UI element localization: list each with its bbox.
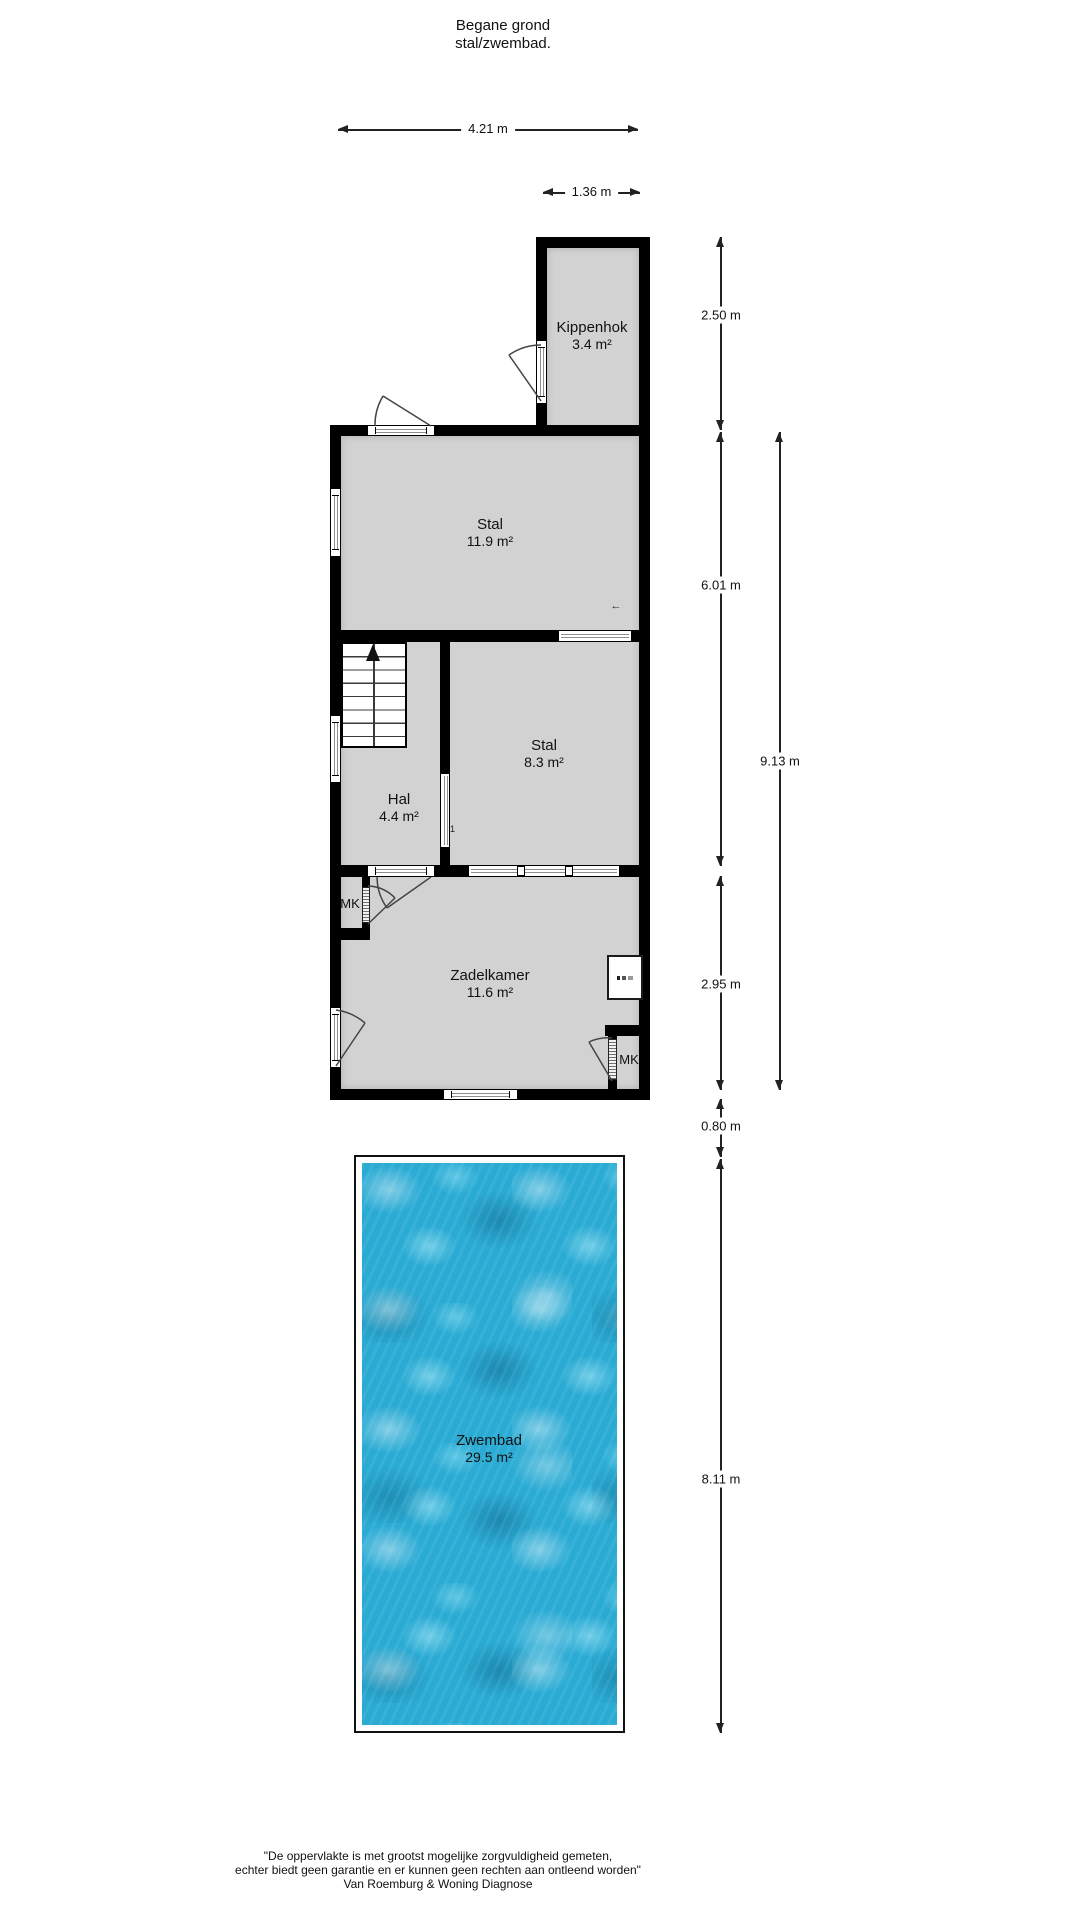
arrow-up-icon <box>716 237 724 247</box>
arrow-down-icon <box>775 1080 783 1090</box>
window-zadelkamer-south <box>443 1089 518 1100</box>
window-glass <box>561 632 629 640</box>
window-stal-small-south <box>468 865 620 877</box>
stairs-divider <box>373 644 375 746</box>
arrow-right-icon <box>630 188 640 196</box>
dim-label: 6.01 m <box>696 577 746 594</box>
arrow-down-icon <box>716 1147 724 1157</box>
door-stal-north-opening <box>367 425 435 436</box>
window-glass <box>332 495 339 550</box>
door-zadelkamer-west-opening <box>330 1007 341 1068</box>
window-glass <box>451 1091 510 1098</box>
staircase <box>341 642 407 748</box>
dim-label: 0.80 m <box>696 1118 746 1135</box>
room-area: 4.4 m² <box>329 808 469 824</box>
boiler-controls-icon <box>617 976 635 980</box>
disclaimer-line-1: "De oppervlakte is met grootst mogelijke… <box>88 1849 788 1863</box>
room-area: 29.5 m² <box>419 1449 559 1465</box>
boiler-unit <box>607 955 643 1000</box>
dim-kippenhok-width: 1.36 m <box>543 187 640 199</box>
door-threshold <box>332 1014 339 1061</box>
door-arc-stal-north <box>375 396 383 426</box>
door-threshold <box>375 867 427 875</box>
arrow-down-icon <box>716 856 724 866</box>
arrow-down-icon <box>716 420 724 430</box>
wall-mk-right-left-bottom <box>608 1080 617 1089</box>
arrow-left-icon <box>338 125 348 133</box>
arrow-left-icon <box>543 188 553 196</box>
floorplan-canvas: Begane grond stal/zwembad. 4.21 m 1.36 m… <box>0 0 1080 1920</box>
room-area: 11.9 m² <box>420 533 560 549</box>
dim-label: 4.21 m <box>461 121 515 136</box>
window-glass <box>471 867 617 875</box>
door-number-mark: 1 <box>450 824 455 834</box>
dim-stal-section-height: 6.01 m <box>715 432 727 866</box>
room-label-kippenhok: Kippenhok 3.4 m² <box>522 320 662 352</box>
dim-label: 1.36 m <box>565 184 619 199</box>
disclaimer: "De oppervlakte is met grootst mogelijke… <box>88 1849 788 1891</box>
level-direction-arrow-icon: ← <box>604 600 628 612</box>
arrow-down-icon <box>716 1723 724 1733</box>
room-label-stal-small: Stal 8.3 m² <box>474 738 614 770</box>
dim-building-width: 4.21 m <box>338 124 638 136</box>
disclaimer-line-3: Van Roemburg & Woning Diagnose <box>88 1877 788 1891</box>
dim-gap: 0.80 m <box>715 1099 727 1157</box>
dim-label: 9.13 m <box>755 753 805 770</box>
window-stal-west-1 <box>330 488 341 557</box>
arrow-right-icon <box>628 125 638 133</box>
door-hal-zadelkamer-opening <box>367 865 435 877</box>
window-hal-west <box>330 715 341 783</box>
room-name: Stal <box>474 738 614 754</box>
title-line-1: Begane grond <box>383 17 623 35</box>
title-line-2: stal/zwembad. <box>383 35 623 53</box>
arrow-up-icon <box>716 432 724 442</box>
room-label-mk-right: MK <box>614 1052 644 1067</box>
window-stal-divider <box>558 630 632 642</box>
dim-zadelkamer-height: 2.95 m <box>715 876 727 1090</box>
room-name: Zadelkamer <box>420 968 560 984</box>
dim-line <box>720 237 722 430</box>
window-mullion <box>565 866 573 876</box>
room-name: Kippenhok <box>522 320 662 336</box>
arrow-up-icon <box>716 1099 724 1109</box>
page-title: Begane grond stal/zwembad. <box>383 17 623 53</box>
room-label-mk-left: MK <box>335 896 365 911</box>
room-name: Zwembad <box>419 1433 559 1449</box>
arrow-up-icon <box>716 1159 724 1169</box>
arrow-up-icon <box>775 432 783 442</box>
disclaimer-line-2: echter biedt geen garantie en er kunnen … <box>88 1863 788 1877</box>
room-name: Hal <box>329 792 469 808</box>
room-area: 11.6 m² <box>420 984 560 1000</box>
room-label-zwembad: Zwembad 29.5 m² <box>419 1433 559 1465</box>
door-threshold <box>538 347 545 397</box>
arrow-down-icon <box>716 1080 724 1090</box>
dim-line <box>720 432 722 866</box>
wall-mk-left-right-bottom <box>362 923 370 940</box>
door-threshold <box>375 427 427 434</box>
arrow-up-icon <box>716 876 724 886</box>
door-leaf-stal-north <box>383 396 431 426</box>
window-mullion <box>517 866 525 876</box>
dim-label: 2.50 m <box>696 307 746 324</box>
room-name: Stal <box>420 517 560 533</box>
window-glass <box>332 722 339 776</box>
room-label-zadelkamer: Zadelkamer 11.6 m² <box>420 968 560 1000</box>
dim-line <box>720 1159 722 1733</box>
dim-pool-height: 8.11 m <box>715 1159 727 1733</box>
dim-label: 8.11 m <box>697 1471 746 1488</box>
room-area: 8.3 m² <box>474 754 614 770</box>
room-area: 3.4 m² <box>522 336 662 352</box>
room-label-stal-large: Stal 11.9 m² <box>420 517 560 549</box>
dim-building-total-height: 9.13 m <box>774 432 786 1090</box>
dim-kippenhok-height: 2.50 m <box>715 237 727 430</box>
room-label-hal: Hal 4.4 m² <box>329 792 469 824</box>
dim-label: 2.95 m <box>696 976 746 993</box>
wall-mk-left-right-top <box>362 877 370 887</box>
